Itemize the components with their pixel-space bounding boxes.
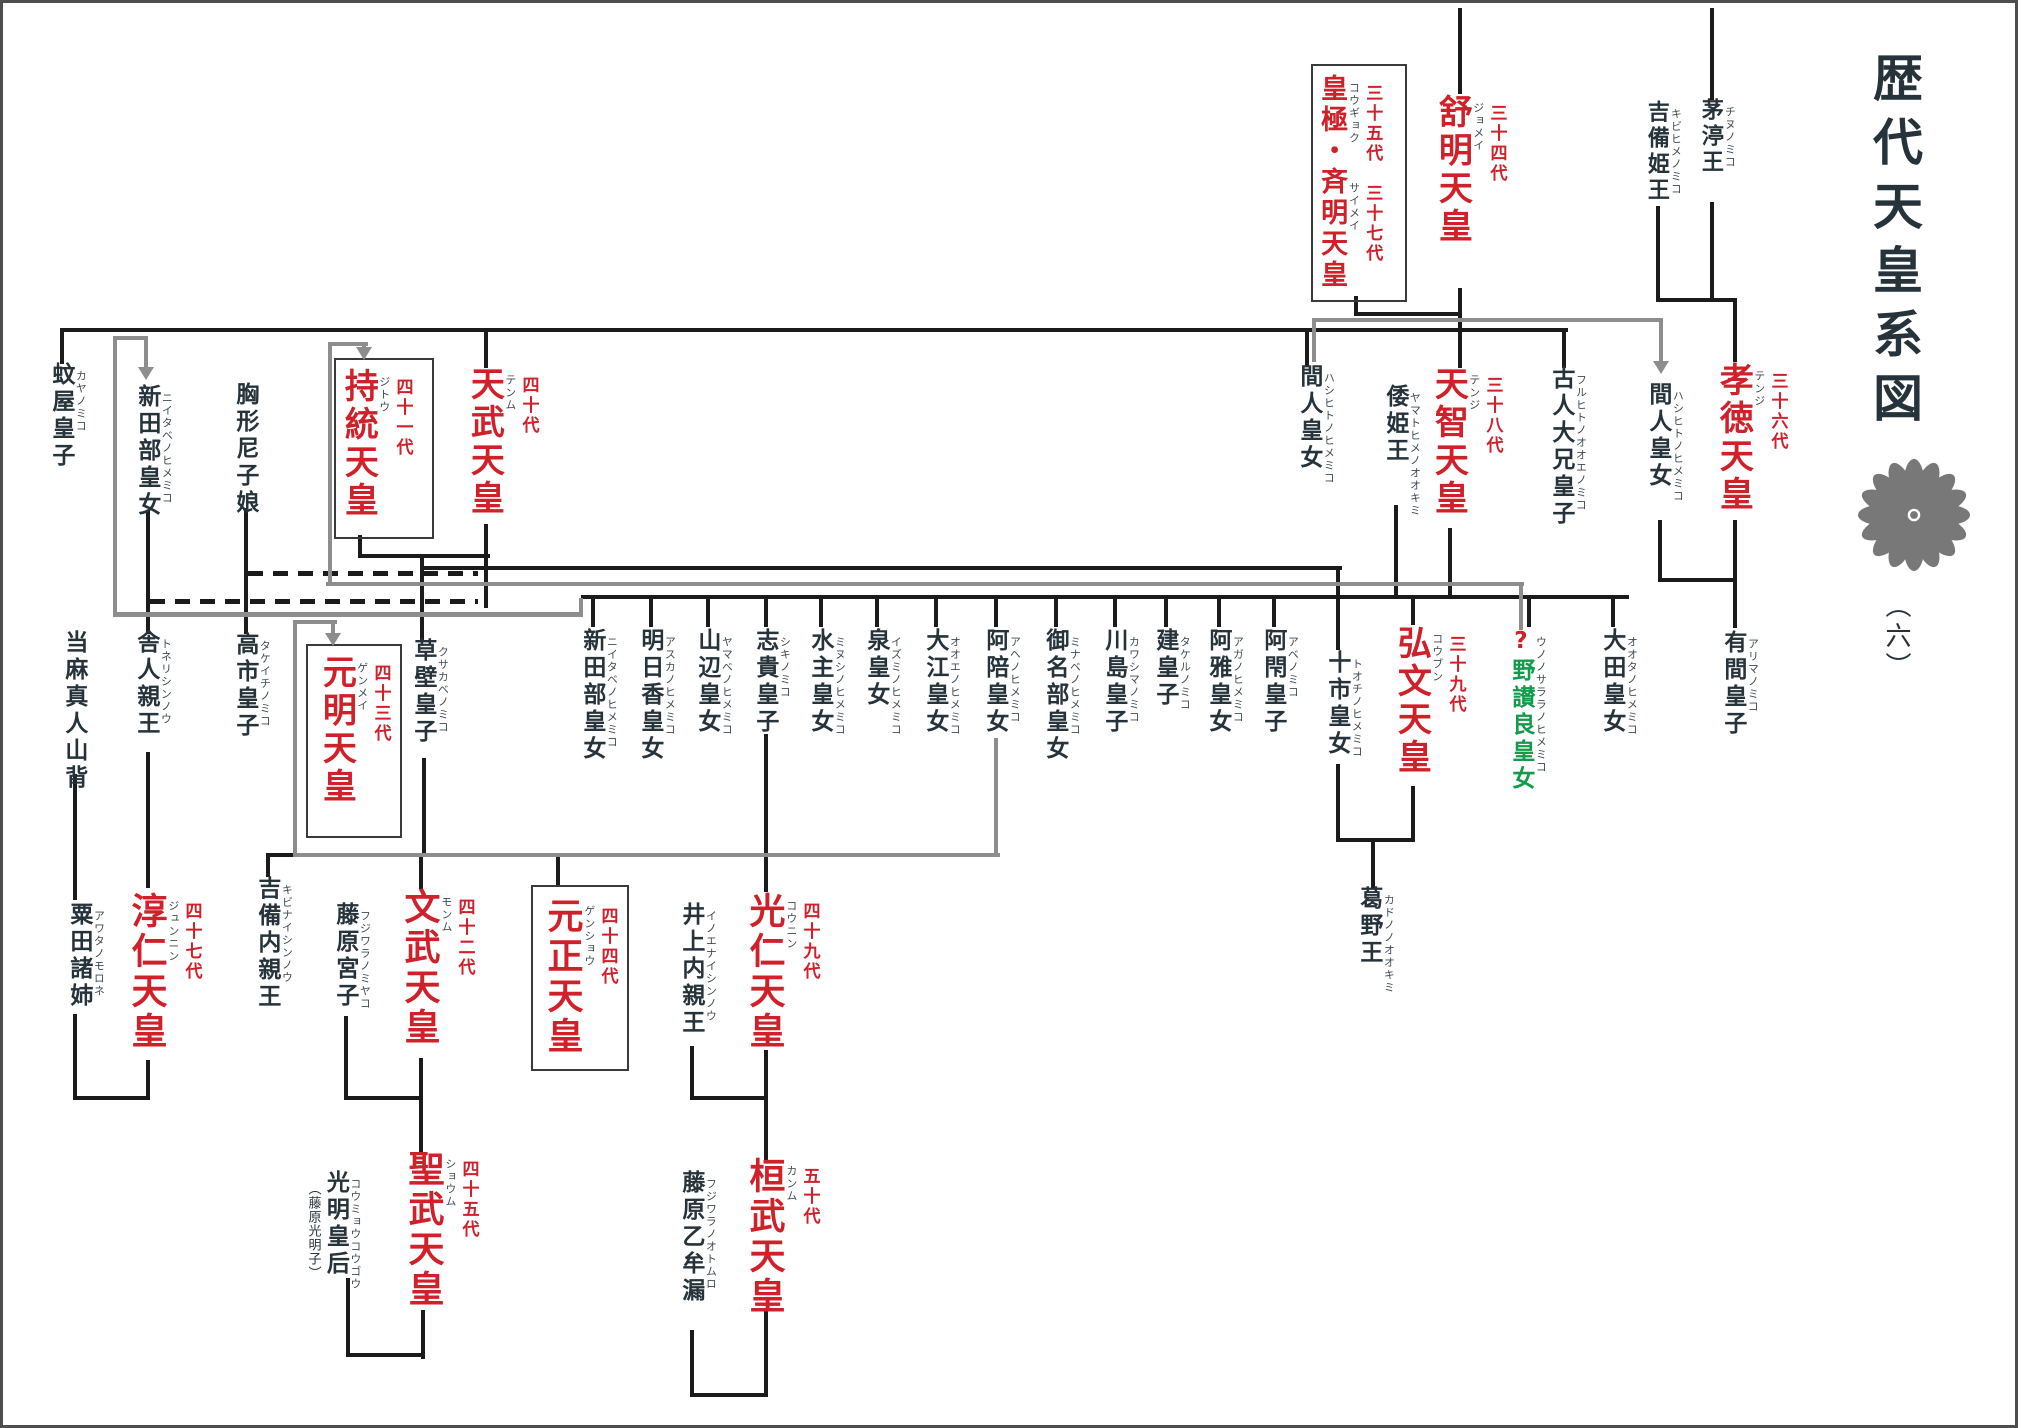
person-name: 粟田諸姉 [66,902,90,1010]
person-hashihito-l: 間人皇女ハシヒトノヒメミコ [1296,364,1334,485]
person-shiki: 志貴皇子シキノミコ [752,628,790,736]
person-reading: アガノヒメミコ [1232,636,1243,724]
person-name: 高市皇子 [232,632,256,740]
person-tenji: 天智天皇テンジ三十八代 [1430,366,1500,518]
tree-line [1656,298,1737,302]
chrysanthemum-seal-icon [1856,457,1972,573]
person-hashihito-r: 間人皇女ハシヒトノヒメミコ [1645,382,1683,503]
person-reading: ゲンメイ [356,662,367,712]
tree-line [422,758,426,855]
link-arrow-down-icon [1653,361,1669,374]
person-reading: カドノノオオキミ [1383,894,1394,994]
person-name: 舒明天皇 [1434,94,1469,246]
person-ooe: 大江皇女オオエノヒメミコ [922,628,960,736]
tree-line [1336,838,1415,842]
person-komyo: （藤原光明子）光明皇后コウミョウコウゴウ [306,1170,361,1291]
person-reading: ハシヒトノヒメミコ [1672,390,1683,503]
tree-line [1519,584,1523,630]
person-name: 山辺皇女 [694,628,718,736]
tree-line [73,774,77,900]
person-reading: アヘノヒメミコ [1009,636,1020,724]
person-reading: クサカベノミコ [437,646,448,734]
person-name: ?野讃良皇女 [1508,628,1532,793]
person-reading: ハシヒトノヒメミコ [1323,372,1334,485]
person-name: 吉備内親王 [254,876,278,1011]
tree-line [1336,566,1340,650]
person-reading: ウノノサララノヒメミコ [1535,636,1546,774]
tree-line [344,1096,423,1100]
person-reading: タケイチノミコ [259,640,270,728]
person-reading: フジワラノオトムロ [705,1178,716,1291]
tree-line [293,853,1000,857]
person-name: 阿閇皇子 [1260,628,1284,736]
person-reading: テンジ [1753,370,1764,408]
tree-line [1411,597,1415,625]
person-name: 天武天皇 [466,366,501,518]
person-kaya: 蚊屋皇子カヤノミコ [48,362,86,470]
tree-line [420,566,1342,570]
person-reading: トオチノヒメミコ [1351,658,1362,758]
person-reading: ヤマベノヒメミコ [721,636,732,736]
person-furuhito: 古人大兄皇子フルヒトノオオエノミコ [1548,366,1586,528]
person-generation: 三十六代 [1768,372,1786,452]
tree-line [556,853,560,885]
person-reading: コウブン [1431,633,1442,683]
tree-line [484,330,488,368]
person-name: 明日香皇女 [637,628,661,763]
person-shomu: 聖武天皇ショウム四十五代 [404,1150,477,1310]
person-reading: カヤノミコ [75,370,86,433]
person-name: 葛野王 [1356,886,1380,967]
tree-line [690,1393,768,1397]
person-reading: オオエノヒメミコ [949,636,960,736]
person-name: 文武天皇 [400,888,437,1048]
person-kobun: 弘文天皇コウブン三十九代 [1393,625,1463,777]
tree-line [1448,528,1452,597]
tree-line [819,597,823,627]
person-name: 舎人親王 [133,630,157,738]
person-reading: ゲンショウ [583,905,594,968]
person-fujiwara-miyako: 藤原宮子フジワラノミヤコ [332,902,370,1010]
person-generation: 四十五代 [459,1160,477,1240]
tree-line [331,620,335,634]
person-gemmei: 元明天皇ゲンメイ四十三代 [318,654,388,806]
person-name: 弘文天皇 [1393,625,1428,777]
tree-line [764,734,768,892]
tree-line [419,1058,423,1152]
person-gensho: 元正天皇ゲンショウ四十四代 [543,897,616,1057]
person-generation: 四十四代 [598,907,616,987]
person-generation: 三十九代 [1446,635,1464,715]
tree-line [706,597,710,627]
person-reading: イノエナイシンノウ [705,910,716,1023]
person-abe: 阿閇皇子アベノミコ [1260,628,1298,736]
tree-line [1217,597,1221,627]
person-reading: チヌノミコ [1724,106,1735,169]
tree-line [146,1060,150,1100]
person-note: （藤原光明子） [306,1182,320,1280]
person-name: 聖武天皇 [404,1150,441,1310]
person-name: 十市皇女 [1324,650,1348,758]
page-part-number: （六） [1882,592,1909,682]
tree-line [649,597,653,627]
person-name: 持統天皇 [340,368,375,520]
tree-line [1659,318,1663,362]
tree-line [1562,330,1566,368]
person-name: 淳仁天皇 [127,892,164,1052]
tree-line [266,853,270,877]
person-uno-no-sarara: ?野讃良皇女ウノノサララノヒメミコ [1508,628,1546,793]
person-reading: タケルノミコ [1179,636,1190,711]
person-name: 茅渟王 [1698,98,1721,176]
tree-line [421,1310,425,1359]
person-reading: アリマノミコ [1747,638,1758,713]
tree-line [1458,288,1462,332]
tree-line [764,1050,768,1160]
tree-line [144,336,148,368]
person-reading: ニイタベノヒメミコ [161,392,172,505]
tree-line [1733,578,1737,628]
person-tochi: 十市皇女トオチノヒメミコ [1324,650,1362,758]
person-reading: ヤマトヒメノオオキミ [1409,392,1420,517]
person-name: 光明皇后 [323,1170,347,1278]
link-arrow-down-icon [356,347,372,360]
person-reading: アスカノヒメミコ [664,636,675,736]
person-name: 新田部皇女 [134,384,158,519]
person-name: 藤原宮子 [332,902,356,1010]
person-name: 天智天皇 [1430,366,1465,518]
person-reading: アベノミコ [1287,636,1298,699]
person-fujiwara-otomuro: 藤原乙牟漏フジワラノオトムロ [678,1170,716,1305]
person-kawashima: 川島皇子カワシマノミコ [1101,628,1139,736]
tree-line [994,597,998,627]
tree-line [328,342,332,586]
person-niitabe-2: 新田部皇女ニイタベノヒメミコ [579,628,617,763]
tree-line [764,1310,768,1397]
tree-line [1164,597,1168,627]
person-generation: 四十二代 [455,898,473,978]
tree-line [1113,597,1117,627]
person-name: 大江皇女 [922,628,946,736]
person-reading: テンム [504,374,515,412]
person-takeru: 建皇子タケルノミコ [1152,628,1190,711]
person-name: 間人皇女 [1296,364,1320,472]
tree-line [358,554,490,558]
person-generation: 三十八代 [1483,376,1501,456]
person-generation: 四十代 [519,376,537,436]
person-kadono: 葛野王カドノノオオキミ [1356,886,1394,994]
person-name: 孝徳天皇 [1715,362,1750,514]
tree-line [146,752,150,888]
tree-line [60,328,1568,332]
person-name: 桓武天皇 [745,1157,782,1317]
person-asuka: 明日香皇女アスカノヒメミコ [637,628,675,763]
person-kusakabe: 草壁皇子クサカベノミコ [410,638,448,746]
person-name: 皇極・斉明天皇 [1317,74,1345,291]
person-izumi: 泉皇女イズミノヒメミコ [863,628,901,736]
tree-line [248,571,478,576]
person-yamabe: 山辺皇女ヤマベノヒメミコ [694,628,732,736]
tree-line [591,597,595,627]
tree-line [1527,597,1531,627]
person-niitabe-1: 新田部皇女ニイタベノヒメミコ [134,384,172,519]
person-name: 井上内親王 [678,902,702,1037]
person-aga: 阿雅皇女アガノヒメミコ [1205,628,1243,736]
person-name: 川島皇子 [1101,628,1125,736]
tree-line [73,1096,150,1100]
person-jomei: 舒明天皇ジョメイ三十四代 [1434,94,1504,246]
tree-line [1054,597,1058,627]
person-generation: 四十九代 [800,902,818,982]
tree-line [1710,202,1714,302]
tree-line [1354,312,1462,316]
tree-line [1733,300,1737,362]
tree-line [994,738,998,857]
person-reading: トネリシンノウ [160,638,171,726]
person-name: 建皇子 [1152,628,1176,709]
person-minushi: 水主皇女ミヌシノヒメミコ [807,628,845,736]
tree-line [1656,206,1660,302]
person-reading: ジトウ [378,376,389,414]
person-name: 新田部皇女 [579,628,603,763]
person-reading: イズミノヒメミコ [890,636,901,736]
person-kibihime: 吉備姫王キビヒメノミコ [1644,100,1681,204]
tree-line [1272,597,1276,627]
person-name: 草壁皇子 [410,638,434,746]
person-taima: 当麻真人山背 [61,630,85,792]
person-generation: 三十四代 [1487,104,1505,184]
tree-line [1312,318,1663,322]
tree-line [1312,318,1316,362]
person-name: 当麻真人山背 [61,630,85,792]
person-name: 志貴皇子 [752,628,776,736]
person-kogyoku-saimei: 皇極・斉明天皇コウギョク サイメイ三十五代 三十七代 [1317,74,1380,291]
person-name: 蚊屋皇子 [48,362,72,470]
person-name: 光仁天皇 [745,892,782,1052]
tree-line [1611,597,1615,627]
person-name: 水主皇女 [807,628,831,736]
person-chinu: 茅渟王チヌノミコ [1698,98,1735,176]
tree-line [1305,330,1309,366]
tree-line [1658,578,1737,582]
person-reading: フルヒトノオオエノミコ [1575,374,1586,512]
person-reading: ジュンニン [167,900,178,963]
tree-line [1458,330,1462,368]
tree-line [1710,8,1714,100]
tree-line [293,620,297,857]
tree-line [60,330,64,364]
person-reading: フジワラノミヤコ [359,910,370,1010]
person-reading: キビヒメノミコ [1670,108,1681,196]
person-arima: 有間皇子アリマノミコ [1720,630,1758,738]
tree-line [934,597,938,627]
tree-line [690,1330,694,1397]
person-reading: ショウム [444,1158,455,1208]
person-reading: コウミョウコウゴウ [349,1178,360,1291]
person-name: 元明天皇 [318,654,353,806]
person-name: 倭姫王 [1382,384,1406,465]
link-arrow-down-icon [325,633,341,646]
person-reading: カワシマノミコ [1128,636,1139,724]
person-generation: 五十代 [800,1167,818,1227]
person-minabe: 御名部皇女ミナベノヒメミコ [1042,628,1080,763]
person-yamatohime: 倭姫王ヤマトヒメノオオキミ [1382,384,1420,517]
person-name: 元正天皇 [543,897,580,1057]
tree-line [1733,520,1737,582]
person-generation: 四十三代 [371,664,389,744]
tree-line [690,1046,694,1100]
person-kammu: 桓武天皇カンム五十代 [745,1157,818,1317]
tree-line [419,853,423,889]
person-name: 阿雅皇女 [1205,628,1229,736]
person-kibi-naishinno: 吉備内親王キビナイシンノウ [254,876,292,1011]
tree-line [326,582,1524,586]
person-name: 有間皇子 [1720,630,1744,738]
person-reading: キビナイシンノウ [281,884,292,984]
person-reading: モンム [440,896,451,934]
person-name: 泉皇女 [863,628,887,709]
genealogy-chart: 歴代天皇系図 （六） 茅渟王チヌノミコ吉備姫王キビヒメノミコ孝徳天皇テンジ三十六… [0,0,2018,1428]
person-reading: ニイタベノヒメミコ [606,636,617,749]
person-inoe: 井上内親王イノエナイシンノウ [678,902,716,1037]
tree-line [1371,838,1375,888]
tree-line [764,597,768,627]
tree-line [346,1353,425,1357]
person-ahe: 阿陪皇女アヘノヒメミコ [982,628,1020,736]
person-kotoku: 孝徳天皇テンジ三十六代 [1715,362,1785,514]
tree-line [113,336,117,616]
person-oota: 大田皇女オオタノヒメミコ [1599,628,1637,736]
person-reading: オオタノヒメミコ [1626,636,1637,736]
tree-line [73,1014,77,1100]
person-awata: 粟田諸姉アワタノモロネ [66,902,104,1010]
person-name: 御名部皇女 [1042,628,1066,763]
tree-line [579,598,583,617]
person-generation: 三十五代 三十七代 [1363,84,1381,264]
person-temmu: 天武天皇テンム四十代 [466,366,536,518]
person-konin: 光仁天皇コウニン四十九代 [745,892,818,1052]
person-generation: 四十七代 [182,902,200,982]
person-reading: コウギョク サイメイ [1348,82,1359,232]
person-reading: ミナベノヒメミコ [1069,636,1080,736]
tree-line [1336,764,1340,842]
person-reading: シキノミコ [779,636,790,699]
tree-line [690,1096,768,1100]
page-title: 歴代天皇系図 [1868,52,1920,436]
person-name: 間人皇女 [1645,382,1669,490]
link-arrow-down-icon [138,367,154,380]
person-name: 吉備姫王 [1644,100,1667,204]
person-toneri: 舎人親王トネリシンノウ [133,630,171,738]
person-junnin: 淳仁天皇ジュンニン四十七代 [127,892,200,1052]
person-generation: 四十一代 [393,378,411,458]
tree-line [1411,786,1415,842]
tree-line [875,597,879,627]
tree-line [113,336,148,340]
person-name: 阿陪皇女 [982,628,1006,736]
person-reading: ミヌシノヒメミコ [834,636,845,736]
person-reading: コウニン [785,900,796,950]
person-name: 藤原乙牟漏 [678,1170,702,1305]
tree-line [1458,8,1462,94]
person-name: 大田皇女 [1599,628,1623,736]
tree-line [113,612,583,617]
person-name: 古人大兄皇子 [1548,366,1572,528]
tree-line [344,1016,348,1100]
person-reading: テンジ [1468,374,1479,412]
tree-line [150,599,478,604]
tree-line [1658,520,1662,582]
person-jito: 持統天皇ジトウ四十一代 [340,368,410,520]
person-reading: ジョメイ [1472,102,1483,152]
person-name: 胸形尼子娘 [232,382,256,517]
person-reading: カンム [785,1165,796,1203]
person-munakata: 胸形尼子娘 [232,382,256,517]
person-takechi: 高市皇子タケイチノミコ [232,632,270,740]
person-mommu: 文武天皇モンム四十二代 [400,888,473,1048]
person-reading: アワタノモロネ [93,910,104,998]
tree-line [581,595,1629,599]
